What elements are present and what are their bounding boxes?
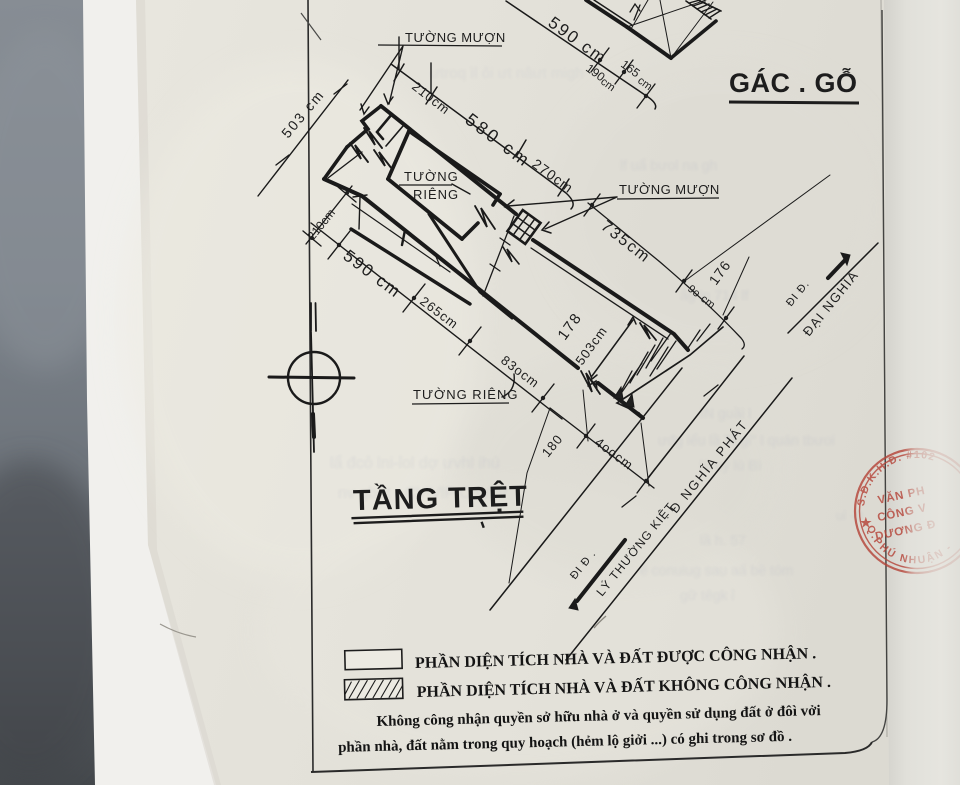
svg-text:gữ têgk ỉ: gữ têgk ỉ xyxy=(680,587,735,603)
svg-text:GÁC . GỖ: GÁC . GỖ xyxy=(729,67,858,98)
svg-text:TƯỜNG MƯỢN: TƯỜNG MƯỢN xyxy=(405,30,506,45)
svg-text:ưtroq ìl ỏi ưt nâưt migh: ưtroq ìl ỏi ưt nâưt migh xyxy=(430,65,584,82)
svg-text:ìN guầi l: ìN guầi l xyxy=(700,405,751,421)
svg-text:RIÊNG: RIÊNG xyxy=(413,187,459,202)
svg-text:lẩ đcỏ lni-ỉol dợ ưvhl ihú: lẩ đcỏ lni-ỉol dợ ưvhl ihú xyxy=(330,454,500,472)
svg-text:ẽ conuiug saụ aấ bề tóm: ẽ conuiug saụ aấ bề tóm xyxy=(640,562,793,578)
svg-text:lf uẩ bưol na gh: lf uẩ bưol na gh xyxy=(620,157,717,173)
svg-text:lầ h. 57: lầ h. 57 xyxy=(700,532,746,548)
svg-text:★: ★ xyxy=(860,515,872,530)
svg-text:TƯỜNG: TƯỜNG xyxy=(404,169,459,184)
svg-text:TƯỜNG RIÊNG: TƯỜNG RIÊNG xyxy=(413,387,518,402)
svg-text:TƯỜNG MƯỢN: TƯỜNG MƯỢN xyxy=(619,182,720,197)
